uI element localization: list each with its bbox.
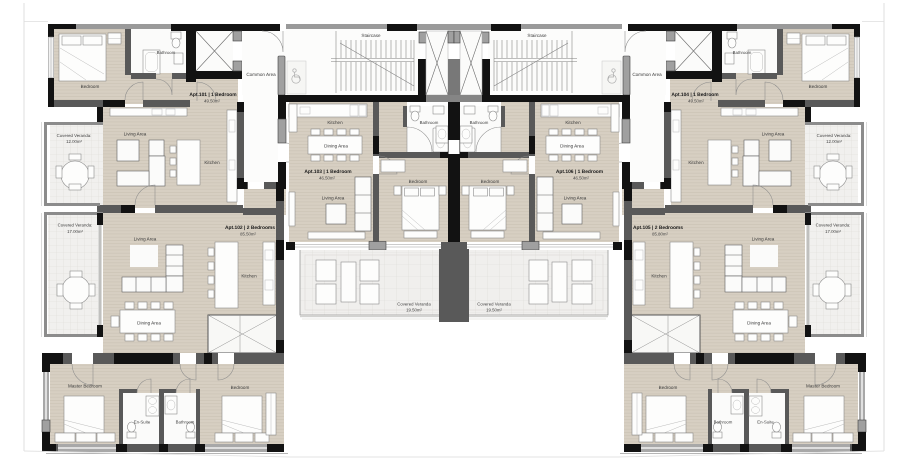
svg-text:49.50m²: 49.50m² xyxy=(688,99,704,104)
svg-text:En-Suite: En-Suite xyxy=(757,420,774,425)
svg-text:19.50m²: 19.50m² xyxy=(406,308,422,313)
svg-text:Kitchen: Kitchen xyxy=(651,274,667,279)
svg-text:Covered Veranda: Covered Veranda xyxy=(397,302,431,307)
svg-text:Living Area: Living Area xyxy=(322,196,345,201)
svg-text:Kitchen: Kitchen xyxy=(565,120,581,125)
svg-text:Dining Area: Dining Area xyxy=(747,321,771,326)
svg-text:Kitchen: Kitchen xyxy=(241,274,257,279)
svg-text:Bedroom: Bedroom xyxy=(659,385,678,390)
svg-text:85.80m²: 85.80m² xyxy=(652,232,668,237)
svg-text:Apt.103 | 1 Bedroom: Apt.103 | 1 Bedroom xyxy=(304,169,352,175)
svg-text:17.00m²: 17.00m² xyxy=(67,229,83,234)
svg-text:Bathroom: Bathroom xyxy=(176,420,195,425)
svg-text:Living Area: Living Area xyxy=(564,196,587,201)
svg-text:Bathroom: Bathroom xyxy=(733,50,752,55)
svg-text:Covered Veranda:: Covered Veranda: xyxy=(817,133,852,138)
svg-text:12.00m²: 12.00m² xyxy=(826,139,842,144)
svg-text:Covered Veranda:: Covered Veranda: xyxy=(816,223,851,228)
svg-text:49.50m²: 49.50m² xyxy=(204,99,220,104)
svg-text:Master Bedroom: Master Bedroom xyxy=(806,384,840,389)
svg-text:Bedroom: Bedroom xyxy=(231,385,250,390)
svg-text:Living Area: Living Area xyxy=(124,132,147,137)
svg-text:Kitchen: Kitchen xyxy=(327,120,343,125)
svg-text:Dining Area: Dining Area xyxy=(560,144,584,149)
svg-text:Common Area: Common Area xyxy=(246,72,276,77)
svg-text:Master Bedroom: Master Bedroom xyxy=(68,384,102,389)
svg-text:Dining Area: Dining Area xyxy=(324,144,348,149)
svg-text:Staircase: Staircase xyxy=(527,33,547,38)
svg-text:Bathroom: Bathroom xyxy=(420,120,439,125)
svg-text:Apt.101 | 1 Bedroom: Apt.101 | 1 Bedroom xyxy=(189,92,237,98)
svg-text:En-Suite: En-Suite xyxy=(134,420,151,425)
svg-text:Kitchen: Kitchen xyxy=(204,160,220,165)
svg-text:Covered Veranda:: Covered Veranda: xyxy=(57,133,92,138)
svg-text:Bathroom: Bathroom xyxy=(714,420,733,425)
svg-text:12.00m²: 12.00m² xyxy=(66,139,82,144)
svg-text:Apt.106 | 1 Bedroom: Apt.106 | 1 Bedroom xyxy=(556,169,604,175)
svg-text:85.50m²: 85.50m² xyxy=(240,232,256,237)
svg-text:Apt.105 | 2 Bedrooms: Apt.105 | 2 Bedrooms xyxy=(633,225,683,231)
svg-text:Common Area: Common Area xyxy=(632,72,662,77)
svg-text:Covered Veranda: Covered Veranda xyxy=(477,302,511,307)
svg-text:Apt.104 | 1 Bedroom: Apt.104 | 1 Bedroom xyxy=(671,92,719,98)
svg-text:19.50m²: 19.50m² xyxy=(486,308,502,313)
svg-text:Apt.102 | 2 Bedrooms: Apt.102 | 2 Bedrooms xyxy=(225,225,275,231)
svg-text:17.00m²: 17.00m² xyxy=(825,229,841,234)
svg-text:Bedroom: Bedroom xyxy=(481,179,500,184)
svg-text:Covered Veranda:: Covered Veranda: xyxy=(58,223,93,228)
svg-text:Bathroom: Bathroom xyxy=(157,50,176,55)
svg-text:Bathroom: Bathroom xyxy=(470,120,489,125)
svg-text:46.50m²: 46.50m² xyxy=(573,176,589,181)
svg-text:Bedroom: Bedroom xyxy=(409,179,428,184)
svg-text:Living Area: Living Area xyxy=(134,237,157,242)
svg-text:Living Area: Living Area xyxy=(752,237,775,242)
svg-text:Staircase: Staircase xyxy=(361,33,381,38)
svg-text:Bedroom: Bedroom xyxy=(809,84,828,89)
svg-text:Dining Area: Dining Area xyxy=(137,321,161,326)
svg-text:Living Area: Living Area xyxy=(762,132,785,137)
svg-text:46.50m²: 46.50m² xyxy=(319,176,335,181)
svg-text:Bedroom: Bedroom xyxy=(81,84,100,89)
svg-text:Kitchen: Kitchen xyxy=(688,160,704,165)
